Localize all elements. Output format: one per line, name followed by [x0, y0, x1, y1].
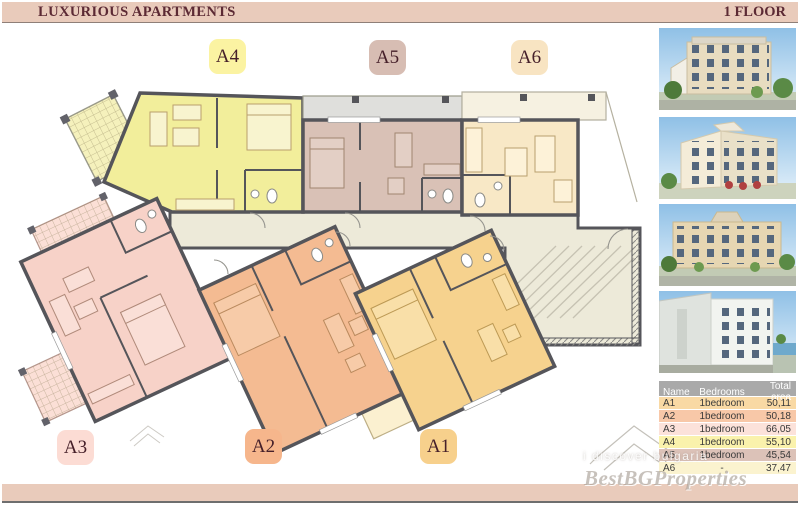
terrace-a6 — [462, 92, 606, 120]
table-row-a3: A3 1bedroom 66,05 — [659, 423, 796, 435]
kitchen-counter — [424, 164, 460, 175]
watermark-house-icon-small — [130, 426, 164, 446]
floor-label: 1 FLOOR — [724, 4, 786, 21]
footer-bar — [2, 484, 798, 503]
cell-total-area: 45,54 — [753, 450, 796, 461]
cell-bedrooms: 1bedroom — [691, 450, 753, 461]
cell-bedrooms: 1bedroom — [691, 411, 753, 422]
watermark-house-icon — [590, 426, 668, 470]
kitchen-counter — [466, 128, 482, 172]
cell-name: A6 — [659, 463, 691, 474]
cell-total-area: 50,18 — [753, 411, 796, 422]
window — [478, 117, 520, 123]
table-row-a1: A1 1bedroom 50,11 — [659, 397, 796, 409]
col-header-name: Name — [659, 387, 691, 398]
building-photo-2 — [659, 117, 796, 199]
cell-name: A4 — [659, 437, 691, 448]
cell-name: A1 — [659, 398, 691, 409]
table-row-a5: A5 1bedroom 45,54 — [659, 449, 796, 461]
apartment-a6-unit — [462, 92, 637, 215]
table-row-a2: A2 1bedroom 50,18 — [659, 410, 796, 422]
apartment-a5-unit — [303, 96, 462, 212]
cell-total-area: 55,10 — [753, 437, 796, 448]
cell-name: A3 — [659, 424, 691, 435]
apartment-label-a4: A4 — [209, 39, 246, 74]
bed — [310, 138, 344, 188]
cell-bedrooms: 1bedroom — [691, 437, 753, 448]
building-photo-3 — [659, 204, 796, 286]
apartment-label-a6: A6 — [511, 40, 548, 75]
window — [328, 117, 380, 123]
terrace-a5 — [303, 96, 462, 120]
building-photo-4 — [659, 291, 796, 373]
building-photo-1 — [659, 28, 796, 110]
col-header-bedrooms: Bedrooms — [691, 387, 753, 398]
bed — [247, 104, 291, 150]
cell-name: A5 — [659, 450, 691, 461]
cell-total-area: 37,47 — [753, 463, 796, 474]
apartment-a4-unit — [104, 93, 303, 212]
page-title: LUXURIOUS APARTMENTS — [38, 4, 236, 21]
brochure-page: { "header": { "title": "LUXURIOUS APARTM… — [0, 0, 800, 510]
table-row-a6: A6 - 37,47 — [659, 462, 796, 474]
apartment-label-a3: A3 — [57, 430, 94, 465]
header-bar: LUXURIOUS APARTMENTS 1 FLOOR — [2, 2, 798, 23]
cell-bedrooms: 1bedroom — [691, 424, 753, 435]
cell-bedrooms: - — [691, 463, 753, 474]
apartment-label-a2: A2 — [245, 429, 282, 464]
table-row-a4: A4 1bedroom 55,10 — [659, 436, 796, 448]
apartment-table: Name Bedrooms Total area A1 1bedroom 50,… — [659, 381, 796, 474]
cell-total-area: 66,05 — [753, 424, 796, 435]
cell-bedrooms: 1bedroom — [691, 398, 753, 409]
hatched-wall-right — [632, 230, 640, 343]
table-header-row: Name Bedrooms Total area — [659, 381, 796, 396]
apartment-label-a5: A5 — [369, 40, 406, 75]
kitchen-counter — [176, 199, 234, 210]
apartment-label-a1: A1 — [420, 429, 457, 464]
cell-total-area: 50,11 — [753, 398, 796, 409]
cell-name: A2 — [659, 411, 691, 422]
